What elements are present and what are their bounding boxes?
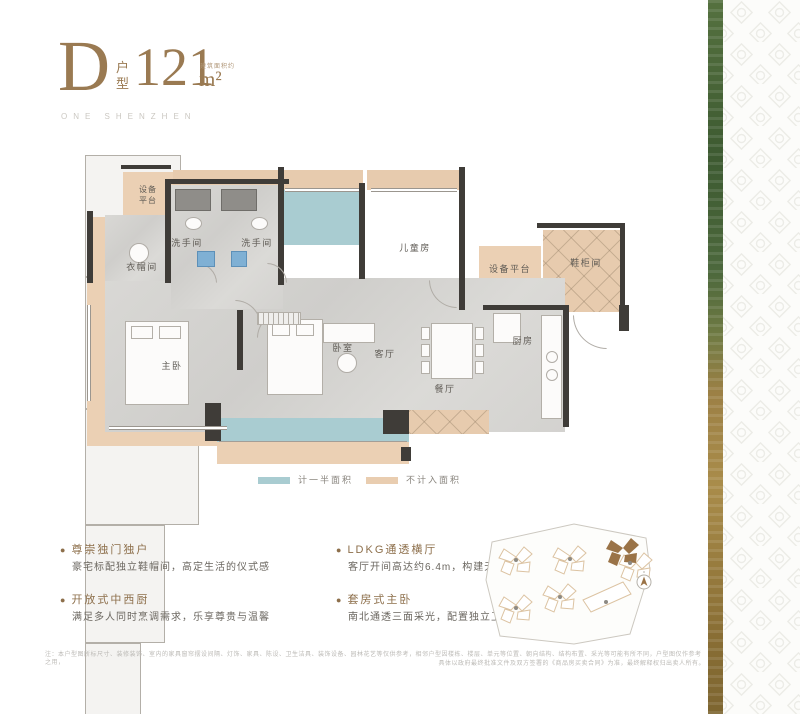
- margin-pattern-fill: [723, 0, 800, 714]
- wall-corner-block: [619, 305, 629, 331]
- area-unit: m²: [199, 67, 222, 92]
- wall-segment: [459, 167, 465, 310]
- wardrobe: [257, 312, 301, 325]
- balcony-edge-line: [219, 441, 407, 442]
- disclaimer-line-2: 具体以政府最终批准文件及双方签署的《商品房买卖合同》为准，最终解释权归出卖人所有…: [45, 660, 705, 668]
- shower: [231, 251, 247, 267]
- wall-segment: [165, 179, 289, 184]
- project-subtitle: ONE SHENZHEN: [61, 112, 197, 121]
- feature-2-desc: 满足多人同时烹调需求，乐享尊贵与温馨: [72, 608, 270, 623]
- bullet-icon: ●: [336, 545, 343, 555]
- stove-burner: [546, 369, 558, 381]
- floor-plan: 设备平台 洗手间 洗手间 衣帽间 儿童房 设备平台 鞋柜间 主卧 卧室 客厅 餐…: [85, 155, 645, 467]
- dining-chair: [421, 327, 430, 340]
- feature-3-title: ●LDKG通透横厅: [336, 541, 437, 557]
- label-master-bedroom: 主卧: [161, 359, 182, 372]
- window: [109, 426, 227, 430]
- building-dot: [514, 558, 518, 562]
- window: [285, 188, 359, 192]
- wall-segment: [537, 223, 625, 228]
- vanity-counter: [175, 189, 211, 211]
- wall-corner-block: [383, 410, 409, 434]
- feature-4-title: ●套房式主卧: [336, 591, 412, 607]
- building-dot: [568, 557, 572, 561]
- dining-table: [431, 323, 473, 379]
- strip-sheen: [708, 0, 723, 714]
- wall-segment: [165, 179, 171, 283]
- legend-swatch-half-area: [258, 477, 290, 484]
- door-arc-entry: [573, 315, 607, 349]
- dining-chair: [421, 344, 430, 357]
- door-arc-bath2: [267, 263, 287, 283]
- label-bathroom-2: 洗手间: [241, 236, 273, 249]
- dining-chair: [475, 327, 484, 340]
- vanity-counter: [221, 189, 257, 211]
- toilet: [185, 217, 202, 230]
- zone-balcony-excluded: [217, 442, 409, 464]
- shower: [197, 251, 215, 267]
- unit-type-label: 户型: [116, 60, 132, 92]
- feature-1-title: ●尊崇独门独户: [60, 541, 149, 557]
- dining-chair: [475, 361, 484, 374]
- legend-label-half-area: 计一半面积: [298, 473, 353, 486]
- zone-tan-band-top: [367, 170, 461, 190]
- wall-corner-block: [401, 447, 411, 461]
- unit-type-letter: D: [58, 30, 110, 102]
- coffee-table: [337, 353, 357, 373]
- label-bedroom: 卧室: [332, 341, 353, 354]
- sofa: [323, 323, 375, 343]
- wall-segment: [87, 211, 93, 283]
- zone-balcony-half: [217, 418, 409, 442]
- pillow: [159, 326, 181, 339]
- label-children-room: 儿童房: [399, 241, 431, 254]
- wall-segment: [483, 305, 569, 310]
- label-equipment-platform-left: 设备平台: [138, 184, 158, 206]
- label-shoe-cabinet: 鞋柜间: [570, 256, 602, 269]
- decor-strip-bamboo-gold: [708, 0, 723, 714]
- bullet-icon: ●: [60, 595, 67, 605]
- stove-burner: [546, 351, 558, 363]
- label-living-room: 客厅: [374, 347, 395, 360]
- window: [371, 188, 457, 192]
- bullet-icon: ●: [336, 595, 343, 605]
- wall-segment: [121, 165, 171, 169]
- dining-chair: [475, 344, 484, 357]
- building-dot: [558, 595, 562, 599]
- window: [87, 305, 91, 401]
- kitchen-counter: [541, 315, 562, 419]
- pillow: [296, 324, 314, 336]
- legend-swatch-excluded-area: [366, 477, 398, 484]
- feature-1-desc: 豪宅标配独立鞋帽间，高定生活的仪式感: [72, 558, 270, 573]
- wall-segment: [359, 183, 365, 279]
- watermark-pattern: [723, 0, 800, 714]
- toilet: [251, 217, 268, 230]
- feature-2-title: ●开放式中西厨: [60, 591, 149, 607]
- zone-flat-roof-half: [281, 190, 363, 245]
- building-dot: [514, 606, 518, 610]
- label-kitchen: 厨房: [512, 334, 533, 347]
- wall-corner-block: [205, 403, 221, 441]
- floorplan-page: D 户型 121 建筑面积约 m² ONE SHENZHEN: [0, 0, 800, 714]
- pillow: [272, 324, 290, 336]
- site-plan: [478, 518, 663, 658]
- building-dot: [604, 600, 608, 604]
- zone-tan-band-top: [281, 170, 363, 190]
- label-dining-room: 餐厅: [434, 382, 455, 395]
- bullet-icon: ●: [60, 545, 67, 555]
- wall-segment: [620, 223, 625, 315]
- label-cloakroom: 衣帽间: [126, 260, 158, 273]
- building-dot: [628, 561, 632, 565]
- pillow: [131, 326, 153, 339]
- dining-chair: [421, 361, 430, 374]
- label-equipment-platform-right: 设备平台: [489, 262, 531, 275]
- legend-label-excluded-area: 不计入面积: [406, 473, 461, 486]
- wall-segment: [563, 305, 569, 427]
- label-bathroom-1: 洗手间: [171, 236, 203, 249]
